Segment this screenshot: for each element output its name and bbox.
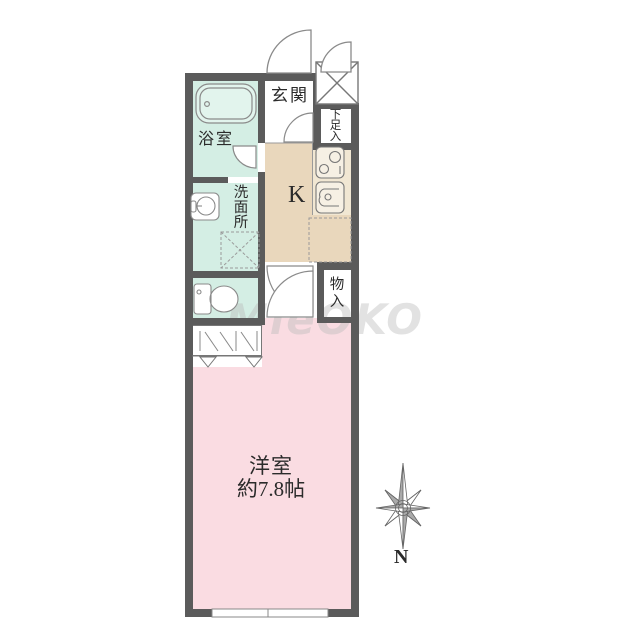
fridge-space xyxy=(309,218,351,262)
bathroom-label: 浴室 xyxy=(198,125,234,149)
storage-label: 物入 xyxy=(329,277,345,311)
upper-right-door-arc xyxy=(321,42,351,72)
washroom-label: 洗面所 xyxy=(233,186,249,231)
shoe-storage-label: 下足入 xyxy=(329,110,342,143)
bathroom-door-arc xyxy=(233,146,256,168)
compass-n-label: N xyxy=(394,546,408,569)
genkan-inner-door-arc xyxy=(284,113,313,142)
bathtub-icon xyxy=(196,84,256,123)
main-room-size-label: 約7.8帖 xyxy=(226,473,316,503)
washer-space-icon xyxy=(221,232,259,268)
toilet-icon xyxy=(194,284,238,314)
window-icon xyxy=(212,609,328,617)
genkan-label: 玄関 xyxy=(271,81,309,106)
floor-plan: MieOKO xyxy=(0,0,640,640)
closet-hatch xyxy=(200,331,257,351)
kitchen-sink-icon xyxy=(316,182,344,213)
entrance-door-arc xyxy=(267,30,311,73)
kitchen-label: K xyxy=(288,182,305,209)
compass-icon xyxy=(376,463,430,549)
closet-door-triangles xyxy=(192,356,262,367)
stove-icon xyxy=(316,147,344,178)
plan-linework xyxy=(0,0,640,640)
washbasin-icon xyxy=(191,193,219,220)
